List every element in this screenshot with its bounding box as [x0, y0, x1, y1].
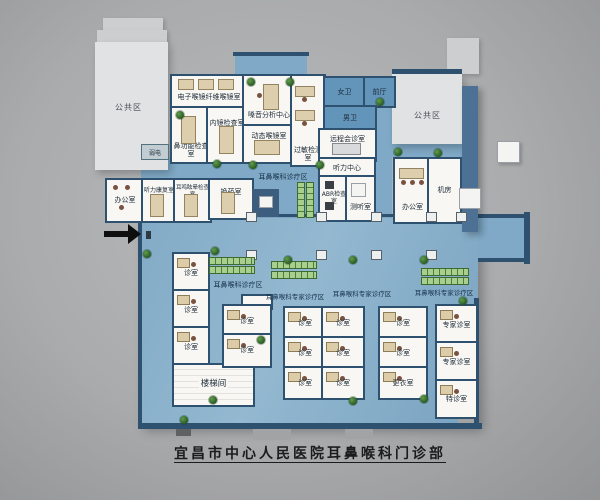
plant — [420, 256, 428, 264]
chair — [302, 121, 307, 126]
plant — [284, 256, 292, 264]
room-label: 诊室 — [240, 346, 254, 354]
room-special-consult: 特诊室 — [435, 379, 478, 419]
area-label-expert-3: 耳鼻喉科专家诊疗区 — [408, 287, 480, 297]
chair — [113, 185, 118, 190]
room-expert-consult: 专家诊室 — [435, 341, 478, 384]
public-area-right-label: 公共区 — [414, 110, 441, 121]
waiting-seats — [421, 268, 469, 276]
column — [316, 250, 327, 260]
entrance-arrow-head — [128, 224, 141, 244]
room-label: 诊室 — [336, 379, 350, 387]
chair — [119, 205, 124, 210]
plant — [349, 256, 357, 264]
floor-plan: 公共区 公共区 电子喉镜纤维喉镜室 鼻功能检查室 内镜检查室 嗓音分析中心 动态… — [0, 0, 600, 500]
chair — [302, 97, 307, 102]
area-label-ent-lower: 耳鼻喉科诊疗区 — [203, 280, 273, 290]
plant — [249, 161, 257, 169]
chair — [125, 185, 130, 190]
plant — [376, 98, 384, 106]
plant — [459, 297, 467, 305]
room-label: 诊室 — [184, 269, 198, 277]
chair — [401, 180, 406, 185]
plant — [211, 247, 219, 255]
room-label: 诊室 — [396, 319, 410, 327]
exam-bed — [198, 79, 214, 90]
room-consult: 诊室 — [172, 326, 210, 368]
exam-bed — [150, 194, 164, 217]
room-label: 办公室 — [115, 196, 136, 204]
area-label-ent-upper: 耳鼻喉科诊疗区 — [248, 172, 318, 182]
public-area-right: 公共区 — [392, 74, 462, 144]
desk — [295, 86, 315, 97]
abr-equipment — [325, 181, 334, 189]
plant — [316, 161, 324, 169]
room-women-wc: 女卫 — [323, 76, 366, 108]
chair — [410, 180, 415, 185]
wall-niche — [459, 188, 481, 209]
wall-corridor-end-bottom — [478, 258, 526, 262]
column — [316, 212, 327, 222]
waiting-seats — [209, 257, 255, 265]
room-label: 更衣室 — [393, 379, 414, 387]
waiting-seats — [421, 277, 469, 285]
room-weak-current: 弱电 — [141, 144, 169, 160]
exam-bed — [254, 140, 280, 155]
audiometry-booth — [351, 183, 366, 197]
public-area-left-label: 公共区 — [115, 102, 142, 113]
area-label-expert-2: 耳鼻喉科专家诊疗区 — [326, 288, 398, 298]
room-label: 诊室 — [336, 349, 350, 357]
desk — [263, 84, 279, 110]
wall-corridor-end-top — [478, 214, 526, 218]
exam-bed — [181, 116, 196, 144]
abr-equipment — [325, 202, 334, 210]
room-label: 诊室 — [184, 306, 198, 314]
waiting-seats — [209, 266, 255, 274]
room-label: 诊室 — [298, 349, 312, 357]
lift-box — [259, 196, 273, 208]
plant — [209, 396, 217, 404]
column — [246, 212, 257, 222]
exam-bed — [219, 126, 234, 154]
room-label: 机房 — [438, 186, 452, 194]
exam-bed — [221, 192, 235, 214]
column — [426, 212, 437, 222]
room-label: 诊室 — [396, 349, 410, 357]
area-label-expert-1: 耳鼻喉科专家诊疗区 — [259, 291, 331, 301]
room-label: 专家诊室 — [443, 358, 471, 366]
chair — [257, 93, 262, 98]
plant — [176, 111, 184, 119]
room-label: 男卫 — [343, 114, 357, 122]
plant — [286, 78, 294, 86]
entrance-arrow — [104, 231, 128, 237]
plant — [420, 395, 428, 403]
plant — [434, 149, 442, 157]
room-label: 诊室 — [298, 379, 312, 387]
room-label: 女卫 — [338, 88, 352, 96]
wall-corridor-end — [524, 212, 530, 264]
room-label: 弱电 — [149, 148, 161, 157]
exam-bed — [178, 79, 194, 90]
plant — [394, 148, 402, 156]
plant — [143, 250, 151, 258]
room-consult: 诊室 — [321, 366, 365, 400]
plant — [213, 160, 221, 168]
wall-bottom — [138, 423, 482, 429]
room-expert-consult: 专家诊室 — [435, 304, 478, 346]
exam-bed — [184, 194, 198, 217]
room-consult: 诊室 — [172, 289, 210, 331]
plant — [349, 397, 357, 405]
plan-title: 宜昌市中心人民医院耳鼻喉科门诊部 — [130, 443, 490, 463]
room-label: 诊室 — [240, 317, 254, 325]
wall-left — [138, 216, 142, 428]
desk — [295, 110, 315, 121]
entrance-marker — [146, 231, 151, 239]
waiting-seats — [306, 182, 314, 218]
plant — [247, 78, 255, 86]
plant — [180, 416, 188, 424]
room-label: 专家诊室 — [443, 321, 471, 329]
top-entrance-bay — [235, 55, 307, 76]
wall-top-bay — [233, 52, 309, 56]
room-label: 特诊室 — [446, 395, 467, 403]
plant — [257, 336, 265, 344]
column — [371, 250, 382, 260]
room-label: 诊室 — [184, 343, 198, 351]
chair — [419, 180, 424, 185]
room-label: 诊室 — [298, 319, 312, 327]
waiting-seats — [297, 182, 305, 218]
room-label: 楼梯间 — [199, 380, 229, 390]
corridor-right-end — [478, 218, 526, 258]
wall-top-right — [392, 69, 462, 74]
column — [371, 212, 382, 222]
column — [456, 212, 467, 222]
right-wing-wall — [462, 86, 478, 232]
room-label: 前厅 — [373, 88, 387, 96]
desk — [399, 168, 424, 179]
corridor-under-public — [392, 144, 462, 157]
exam-bed — [218, 79, 234, 90]
conference-table — [332, 143, 361, 155]
room-label: 听力中心 — [333, 164, 361, 172]
waiting-seats — [271, 271, 317, 279]
detached-block — [497, 141, 520, 163]
waiting-seats — [271, 261, 317, 269]
room-label: 诊室 — [336, 319, 350, 327]
